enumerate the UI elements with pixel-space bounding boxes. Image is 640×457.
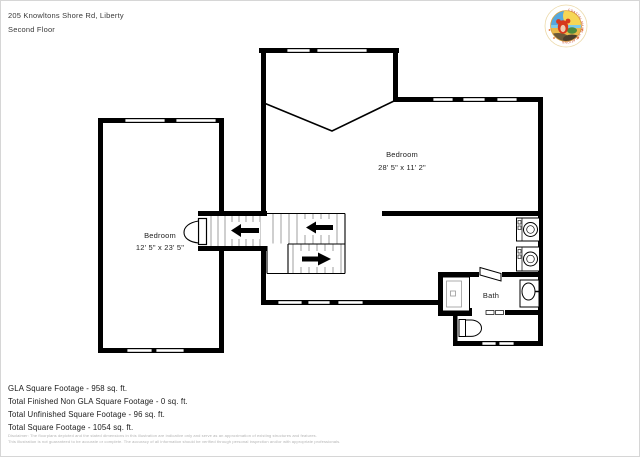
square-footage-stats: GLA Square Footage - 958 sq. ft. Total F… — [8, 382, 188, 434]
stat-line: GLA Square Footage - 958 sq. ft. — [8, 382, 188, 395]
stat-line: Total Finished Non GLA Square Footage - … — [8, 395, 188, 408]
window — [433, 98, 453, 101]
window — [278, 301, 302, 304]
toilet-room-door — [486, 311, 494, 315]
wall-bath-top-right — [502, 272, 543, 277]
room-dimensions-bedroom-right: 28' 5" x 11' 2" — [378, 163, 426, 172]
ceiling-break-lines — [264, 101, 394, 131]
window — [125, 119, 165, 122]
room-dimensions-bedroom-left: 12' 5" x 23' 5" — [136, 243, 184, 252]
walls — [98, 48, 543, 353]
wall-stair-top — [198, 211, 267, 216]
disclaimer-line: This illustration is not guaranteed to b… — [8, 439, 340, 445]
dryer — [517, 247, 540, 271]
washer — [517, 218, 540, 241]
room-label-bath: Bath — [483, 291, 499, 300]
room-label-bedroom-left: Bedroom — [144, 231, 176, 240]
wall-stair-bottom — [198, 246, 267, 251]
stat-line: Total Unfinished Square Footage - 96 sq.… — [8, 408, 188, 421]
window — [308, 301, 330, 304]
stair-arrows — [228, 219, 336, 267]
window — [463, 98, 485, 101]
window — [176, 119, 216, 122]
room-label-bedroom-right: Bedroom — [386, 150, 418, 159]
sink — [520, 280, 540, 307]
window — [287, 49, 310, 52]
window — [482, 342, 496, 345]
shower — [443, 277, 470, 311]
wall-dormer-right — [393, 48, 398, 102]
wall-main-left-upper — [261, 48, 266, 211]
door-jamb — [199, 219, 207, 245]
window — [338, 301, 363, 304]
window — [497, 98, 517, 101]
wall-main-left-lower — [261, 250, 266, 305]
floorplan-page: { "header": { "address": "205 Knowltons … — [0, 0, 640, 457]
wall-toilet-bottom — [453, 341, 543, 346]
window — [156, 349, 184, 352]
toilet-room-door — [496, 311, 504, 315]
wall-left-bedroom-left — [98, 118, 103, 353]
window — [127, 349, 152, 352]
wall-left-bedroom-right-lower — [219, 250, 224, 353]
window — [499, 342, 514, 345]
disclaimer: Disclaimer: The floorplans depicted and … — [8, 433, 340, 445]
door-swing — [184, 221, 199, 243]
wall-bath-mid — [505, 310, 543, 315]
wall-toilet-left — [453, 316, 458, 345]
bath-door — [480, 268, 501, 282]
toilet — [459, 320, 482, 337]
wall-interior — [382, 211, 543, 216]
wall-bath-top-left — [438, 272, 479, 277]
wall-left-bedroom-right-upper — [219, 118, 224, 213]
window — [317, 49, 367, 52]
